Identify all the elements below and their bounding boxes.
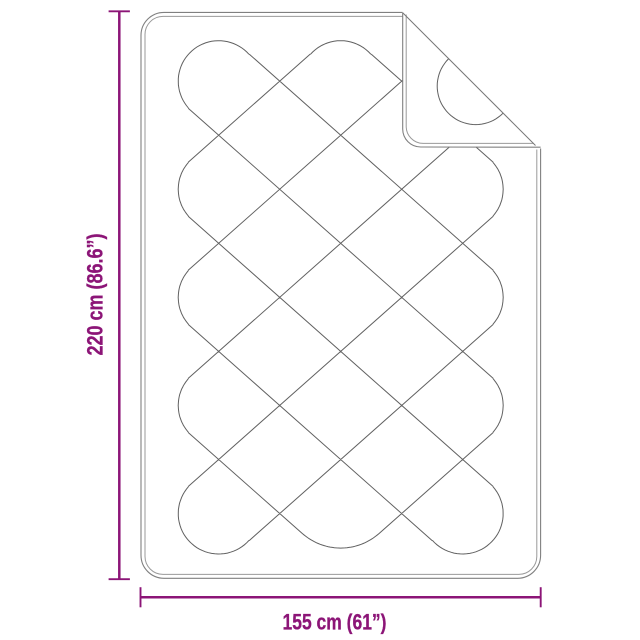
svg-text:155 cm (61”): 155 cm (61”) bbox=[283, 610, 387, 635]
svg-text:220 cm (86.6”): 220 cm (86.6”) bbox=[83, 234, 108, 356]
